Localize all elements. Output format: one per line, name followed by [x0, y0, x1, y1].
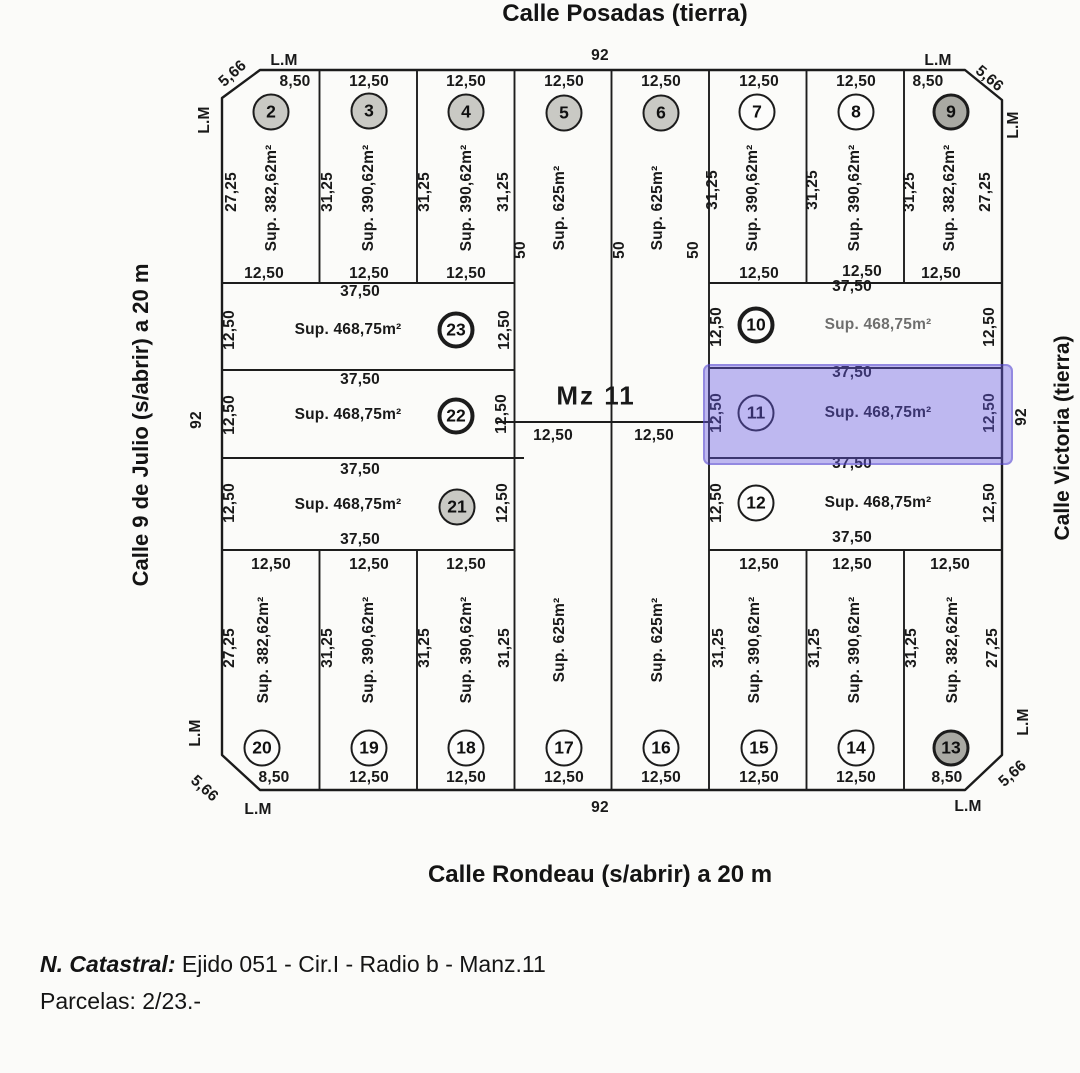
dim-label: L.M: [244, 801, 271, 819]
cadastral-sheet: Calle Posadas (tierra) Calle 9 de Julio …: [0, 0, 1080, 1073]
parcel-circle-6: 6: [643, 95, 680, 132]
dim-label: 12,50: [349, 73, 389, 91]
parcel-circle-16: 16: [643, 730, 680, 767]
dim-label: 27,25: [223, 172, 241, 212]
dim-label: 12,50: [708, 307, 726, 347]
parcel-circle-20: 20: [244, 730, 281, 767]
dim-label: 31,25: [319, 628, 337, 668]
dim-label: 31,25: [806, 628, 824, 668]
dim-label: 92: [591, 799, 609, 817]
dim-label: 12,50: [930, 556, 970, 574]
dim-label: 8,50: [932, 769, 963, 787]
dim-label: 50: [611, 241, 629, 259]
dim-label: 12,50: [981, 307, 999, 347]
dim-label: 31,25: [416, 172, 434, 212]
dim-label: L.M: [924, 52, 951, 70]
plan-canvas: 92L.M5,66L.ML.M5,66L.M929292L.M5,66L.ML.…: [0, 0, 1080, 1073]
parcel-area-14: Sup. 390,62m²: [846, 597, 864, 704]
dim-label: 37,50: [340, 531, 380, 549]
dim-label: 31,25: [319, 172, 337, 212]
dim-label: 12,50: [349, 265, 389, 283]
dim-label: 37,50: [832, 364, 872, 382]
parcel-area-19: Sup. 390,62m²: [360, 597, 378, 704]
dim-label: 12,50: [981, 483, 999, 523]
dim-label: 12,50: [496, 310, 514, 350]
dim-label: 27,25: [984, 628, 1002, 668]
parcel-area-2: Sup. 382,62m²: [263, 145, 281, 252]
parcel-area-3: Sup. 390,62m²: [360, 145, 378, 252]
parcel-circle-9: 9: [933, 94, 970, 131]
dim-label: 12,50: [244, 265, 284, 283]
dim-label: 12,50: [221, 310, 239, 350]
dim-label: 31,25: [496, 628, 514, 668]
parcel-circle-11: 11: [738, 395, 775, 432]
dim-label: 37,50: [340, 461, 380, 479]
dim-label: 31,25: [901, 172, 919, 212]
dim-label: 50: [512, 241, 530, 259]
parcel-area-20: Sup. 382,62m²: [255, 597, 273, 704]
dim-label: 12,50: [251, 556, 291, 574]
dim-label: 12,50: [739, 556, 779, 574]
dim-label: 12,50: [221, 483, 239, 523]
dim-label: 31,25: [903, 628, 921, 668]
dim-label: 12,50: [221, 395, 239, 435]
dim-label: 92: [1013, 408, 1031, 426]
parcel-circle-17: 17: [546, 730, 583, 767]
parcel-area-10: Sup. 468,75m²: [825, 316, 932, 334]
parcel-area-6: Sup. 625m²: [649, 166, 667, 251]
parcel-area-13: Sup. 382,62m²: [944, 597, 962, 704]
parcel-area-18: Sup. 390,62m²: [458, 597, 476, 704]
dim-label: 31,25: [416, 628, 434, 668]
dim-label: 8,50: [913, 73, 944, 91]
parcel-circle-2: 2: [253, 94, 290, 131]
dim-label: 92: [188, 411, 206, 429]
dim-label: 37,50: [832, 529, 872, 547]
block-number-label: Mz 11: [556, 381, 635, 412]
dim-label: 12,50: [836, 73, 876, 91]
dim-label: 12,50: [921, 265, 961, 283]
parcel-area-12: Sup. 468,75m²: [825, 494, 932, 512]
dim-label: 31,25: [704, 170, 722, 210]
dim-label: 12,50: [739, 769, 779, 787]
dim-label: 12,50: [544, 769, 584, 787]
dim-label: 12,50: [446, 556, 486, 574]
dim-label: 8,50: [259, 769, 290, 787]
parcel-circle-15: 15: [741, 730, 778, 767]
dim-label: 37,50: [832, 455, 872, 473]
parcel-area-23: Sup. 468,75m²: [295, 321, 402, 339]
dim-label: 12,50: [533, 427, 573, 445]
dim-label: 50: [685, 241, 703, 259]
parcel-area-16: Sup. 625m²: [649, 598, 667, 683]
parcel-area-7: Sup. 390,62m²: [744, 145, 762, 252]
parcel-circle-8: 8: [838, 94, 875, 131]
parcel-circle-21: 21: [439, 489, 476, 526]
parcel-area-21: Sup. 468,75m²: [295, 496, 402, 514]
dim-label: 12,50: [446, 769, 486, 787]
dim-label: 12,50: [708, 483, 726, 523]
parcel-circle-5: 5: [546, 95, 583, 132]
dim-label: L.M: [1015, 708, 1033, 735]
dim-label: L.M: [187, 719, 205, 746]
parcel-area-9: Sup. 382,62m²: [941, 145, 959, 252]
dim-label: 31,25: [495, 172, 513, 212]
dim-label: 8,50: [280, 73, 311, 91]
dim-label: 92: [591, 47, 609, 65]
dim-label: 31,25: [710, 628, 728, 668]
dim-label: 12,50: [832, 556, 872, 574]
dim-label: 12,50: [494, 483, 512, 523]
dim-label: 12,50: [641, 73, 681, 91]
parcel-area-15: Sup. 390,62m²: [746, 597, 764, 704]
dim-label: 37,50: [340, 283, 380, 301]
parcel-circle-4: 4: [448, 94, 485, 131]
dim-label: 12,50: [641, 769, 681, 787]
dim-label: 12,50: [349, 556, 389, 574]
parcel-area-8: Sup. 390,62m²: [846, 145, 864, 252]
dim-label: 37,50: [340, 371, 380, 389]
dim-label: 31,25: [804, 170, 822, 210]
parcel-area-5: Sup. 625m²: [551, 166, 569, 251]
parcel-circle-19: 19: [351, 730, 388, 767]
parcel-circle-3: 3: [351, 93, 388, 130]
parcel-circle-7: 7: [739, 94, 776, 131]
plan-linework: [0, 0, 1080, 1073]
parcel-circle-12: 12: [738, 485, 775, 522]
dim-label: 12,50: [446, 265, 486, 283]
parcel-circle-13: 13: [933, 730, 970, 767]
parcel-area-22: Sup. 468,75m²: [295, 406, 402, 424]
dim-label: 37,50: [832, 278, 872, 296]
dim-label: 12,50: [349, 769, 389, 787]
parcel-circle-23: 23: [438, 312, 475, 349]
dim-label: 27,25: [977, 172, 995, 212]
dim-label: 12,50: [708, 393, 726, 433]
parcel-circle-10: 10: [738, 307, 775, 344]
dim-label: 12,50: [981, 393, 999, 433]
dim-label: 12,50: [739, 73, 779, 91]
dim-label: 27,25: [221, 628, 239, 668]
dim-label: 12,50: [544, 73, 584, 91]
dim-label: L.M: [196, 106, 214, 133]
dim-label: 12,50: [446, 73, 486, 91]
parcel-circle-22: 22: [438, 398, 475, 435]
parcel-area-4: Sup. 390,62m²: [458, 145, 476, 252]
dim-label: 12,50: [493, 394, 511, 434]
dim-label: L.M: [270, 52, 297, 70]
dim-label: 12,50: [836, 769, 876, 787]
parcel-area-11: Sup. 468,75m²: [825, 404, 932, 422]
parcel-circle-18: 18: [448, 730, 485, 767]
dim-label: 12,50: [634, 427, 674, 445]
dim-label: L.M: [954, 798, 981, 816]
dim-label: L.M: [1005, 111, 1023, 138]
parcel-area-17: Sup. 625m²: [551, 598, 569, 683]
parcel-circle-14: 14: [838, 730, 875, 767]
dim-label: 12,50: [739, 265, 779, 283]
